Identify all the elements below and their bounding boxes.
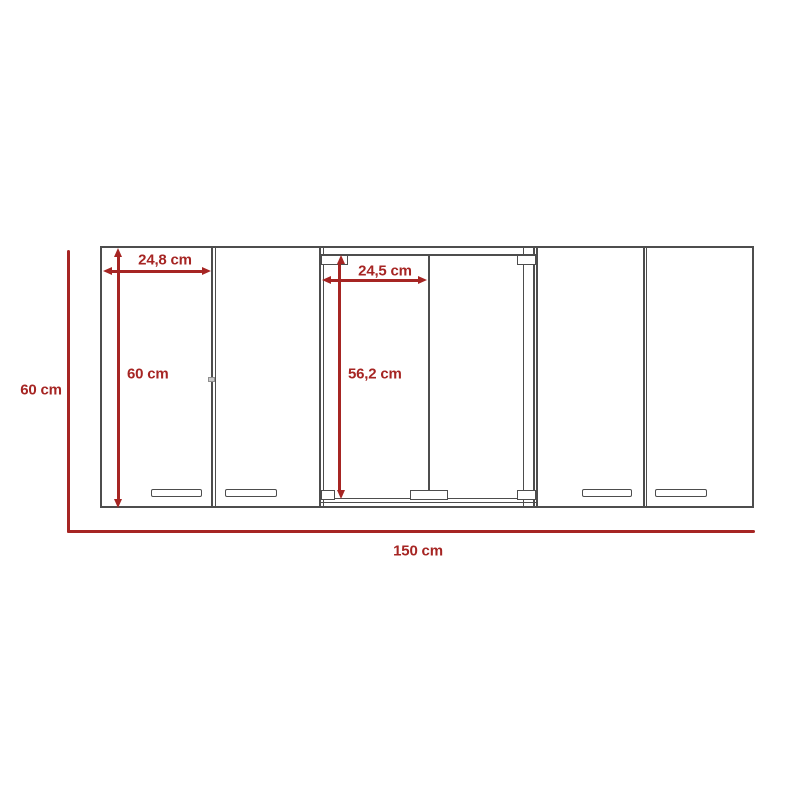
overall-height-dimension-line	[67, 250, 70, 534]
right-door-divider-line	[646, 248, 648, 506]
dimension-arrow-down	[337, 490, 345, 499]
hinge-tab-top-right	[517, 255, 536, 265]
glass-door-right-edge-line	[523, 248, 525, 506]
glass-door-width-label: 24,5 cm	[358, 264, 412, 279]
cabinet-outline	[100, 246, 754, 508]
cabinet-dimension-diagram: 24,8 cm 60 cm 24,5 cm 56,2 cm 60 cm 150 …	[0, 0, 800, 800]
glass-door-height-dimension-line	[338, 262, 341, 492]
left-door-height-label: 60 cm	[127, 367, 169, 382]
door-handle	[655, 489, 707, 497]
door-handle	[582, 489, 632, 497]
dimension-arrow-right	[418, 276, 427, 284]
glass-section-left-edge-line	[323, 248, 325, 506]
left-door-height-dimension-line	[117, 255, 120, 500]
glass-door-center-divider-line	[428, 255, 430, 499]
door-handle	[151, 489, 202, 497]
dimension-arrow-right	[202, 267, 211, 275]
door-handle	[225, 489, 277, 497]
glass-door-width-dimension-line	[329, 279, 420, 282]
overall-width-dimension-line	[67, 530, 755, 533]
overall-height-label: 60 cm	[20, 383, 62, 398]
glass-section-bottom-rail	[320, 502, 537, 503]
left-door-width-label: 24,8 cm	[138, 253, 192, 268]
hinge-tab-bottom-right	[517, 490, 536, 500]
glass-door-height-label: 56,2 cm	[348, 367, 402, 382]
glass-section-top-rail	[320, 254, 537, 256]
glass-section-left-edge-line	[319, 248, 321, 506]
glass-section-right-edge-line	[536, 248, 538, 506]
glass-section-right-edge-line	[533, 248, 535, 506]
overall-width-label: 150 cm	[393, 544, 443, 559]
left-door-width-dimension-line	[110, 270, 203, 273]
hinge-tab-bottom-center	[410, 490, 448, 500]
right-door-divider-line	[643, 248, 645, 506]
dimension-arrow-down	[114, 499, 122, 508]
divider-hinge-tick	[208, 377, 216, 382]
hinge-tab-bottom-left	[321, 490, 335, 500]
